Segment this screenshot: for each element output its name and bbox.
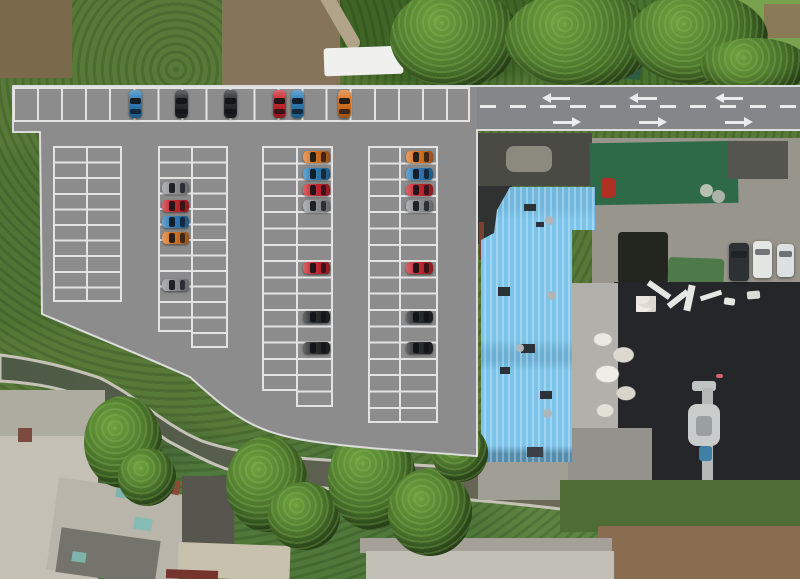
- parked-car-blue: [291, 90, 304, 118]
- skylight-2: [536, 222, 544, 227]
- red-building-edge: [18, 428, 32, 442]
- lane-arrow-right: [553, 121, 573, 124]
- parked-car-gray: [162, 182, 189, 194]
- tree: [118, 448, 176, 506]
- skylight-7: [527, 447, 543, 457]
- parked-car-blue: [406, 168, 433, 180]
- parked-car-red: [273, 90, 286, 118]
- chimney-core: [696, 416, 712, 436]
- lane-arrow-left: [550, 97, 570, 100]
- parked-car-red: [406, 184, 433, 196]
- parked-car-orange: [406, 151, 433, 163]
- roof-vent-1: [545, 216, 554, 225]
- parked-car-red: [406, 262, 433, 274]
- red-speck: [716, 374, 723, 378]
- parked-car-black: [303, 342, 330, 354]
- column-4-left: [368, 146, 401, 423]
- dirt-field: [598, 526, 800, 579]
- parked-car-blue: [303, 168, 330, 180]
- parked-car-black: [303, 311, 330, 323]
- parked-car-orange: [303, 151, 330, 163]
- roof-light-patch: [506, 146, 552, 172]
- parked-car-blue: [162, 216, 189, 228]
- dirt-patch-top-left: [0, 0, 72, 78]
- parked-car-black: [175, 90, 188, 118]
- path-below-blue-roof: [478, 462, 568, 500]
- pipe-stack: [618, 232, 668, 284]
- dark-suv: [729, 243, 749, 281]
- lane-arrow-right: [725, 121, 745, 124]
- dirt-patch-top-mid: [222, 0, 340, 88]
- lane-arrow-right: [639, 121, 659, 124]
- aerial-parking-screenshot: [0, 0, 800, 579]
- parked-car-gray: [162, 279, 189, 291]
- teal-tank-3: [71, 551, 86, 563]
- teal-tank-2: [133, 517, 152, 531]
- skylight-3: [498, 287, 510, 296]
- road-dashed-centerline: [480, 105, 800, 108]
- parked-car-black: [224, 90, 237, 118]
- parked-car-gray: [303, 200, 330, 212]
- chimney-valve-blue: [699, 446, 712, 461]
- parked-car-black: [406, 342, 433, 354]
- skylight-1: [524, 204, 536, 211]
- parked-car-orange: [338, 90, 351, 118]
- roof-vent-3: [516, 344, 524, 352]
- roof-vent-4: [543, 409, 552, 418]
- round-tank-2: [712, 190, 725, 203]
- debris-pile: [590, 328, 648, 424]
- roof-white-spot-2: [747, 290, 761, 299]
- skylight-6: [540, 391, 552, 399]
- column-2-right: [191, 146, 228, 348]
- roof-white-spot-1: [724, 297, 736, 305]
- tree: [432, 424, 488, 482]
- roof-vent-2: [547, 291, 556, 300]
- red-equipment: [601, 178, 615, 198]
- lane-arrow-left: [723, 97, 743, 100]
- vegetation-band-right: [560, 480, 800, 532]
- tree-canopy: [700, 38, 800, 94]
- parked-car-red: [162, 200, 189, 212]
- parked-car-red: [303, 184, 330, 196]
- flat-roof-dark-b: [728, 141, 788, 179]
- parked-car-gray: [406, 200, 433, 212]
- column-1-right: [86, 146, 122, 302]
- parked-car-orange: [162, 232, 189, 244]
- brown-patch-top-right: [764, 4, 800, 38]
- debris-pile-small: [636, 296, 656, 312]
- parked-car-black: [406, 311, 433, 323]
- column-1-left: [53, 146, 88, 302]
- white-car: [777, 244, 794, 277]
- parked-car-blue: [129, 90, 142, 118]
- green-tarp-crates: [668, 257, 725, 285]
- skylight-5: [500, 367, 510, 374]
- top-stall-row: [13, 87, 470, 122]
- white-van: [753, 241, 772, 278]
- lane-arrow-left: [637, 97, 657, 100]
- maroon-roof-strip: [166, 569, 218, 579]
- parked-car-red: [303, 262, 330, 274]
- column-3-left: [262, 146, 298, 391]
- long-building-bottom: [366, 551, 614, 579]
